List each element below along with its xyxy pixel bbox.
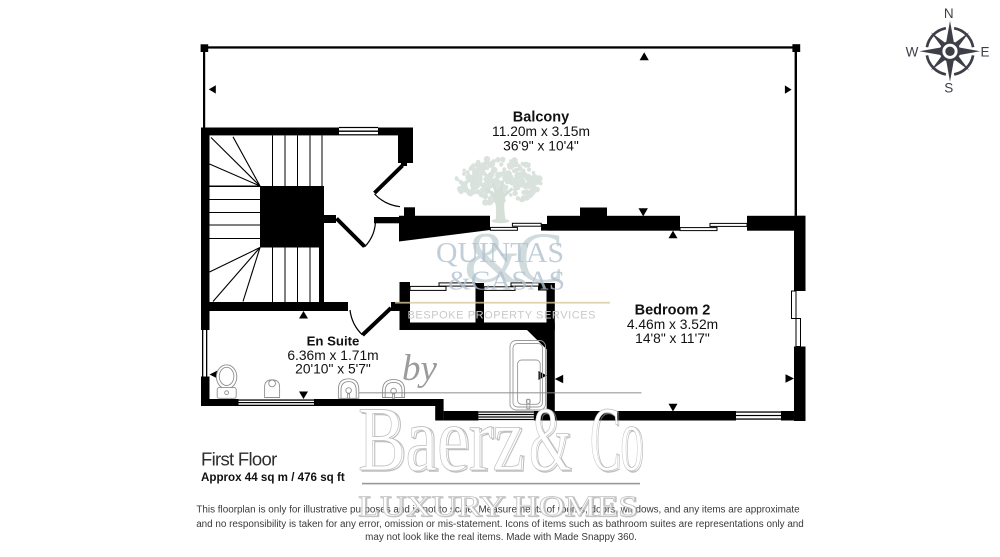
svg-text:11.20m x 3.15m: 11.20m x 3.15m [492,124,590,139]
svg-text:36'9" x 10'4": 36'9" x 10'4" [503,139,579,154]
svg-text:W: W [906,45,919,60]
svg-text:Co: Co [590,388,643,490]
svg-text:E: E [980,45,989,60]
svg-text:BESPOKE PROPERTY SERVICES: BESPOKE PROPERTY SERVICES [408,310,596,322]
svg-text:20'10" x 5'7": 20'10" x 5'7" [295,362,371,377]
svg-text:&: & [529,388,571,490]
svg-text:En Suite: En Suite [307,334,360,349]
svg-text:N: N [944,6,954,21]
svg-text:Approx 44 sq m / 476 sq ft: Approx 44 sq m / 476 sq ft [201,471,345,484]
svg-text:by: by [402,348,438,389]
svg-text:14'8" x 11'7": 14'8" x 11'7" [635,331,710,346]
svg-text:First Floor: First Floor [201,449,277,470]
svg-text:&CASAS: &CASAS [448,266,565,296]
svg-text:LUXURY HOMES: LUXURY HOMES [358,490,638,523]
svg-text:may not look like the real ite: may not look like the real items. Made w… [365,532,637,543]
svg-text:4.46m x 3.52m: 4.46m x 3.52m [627,317,718,332]
svg-text:QUINTAS: QUINTAS [436,237,564,269]
svg-text:S: S [944,81,953,96]
svg-text:Baerz: Baerz [358,388,524,490]
